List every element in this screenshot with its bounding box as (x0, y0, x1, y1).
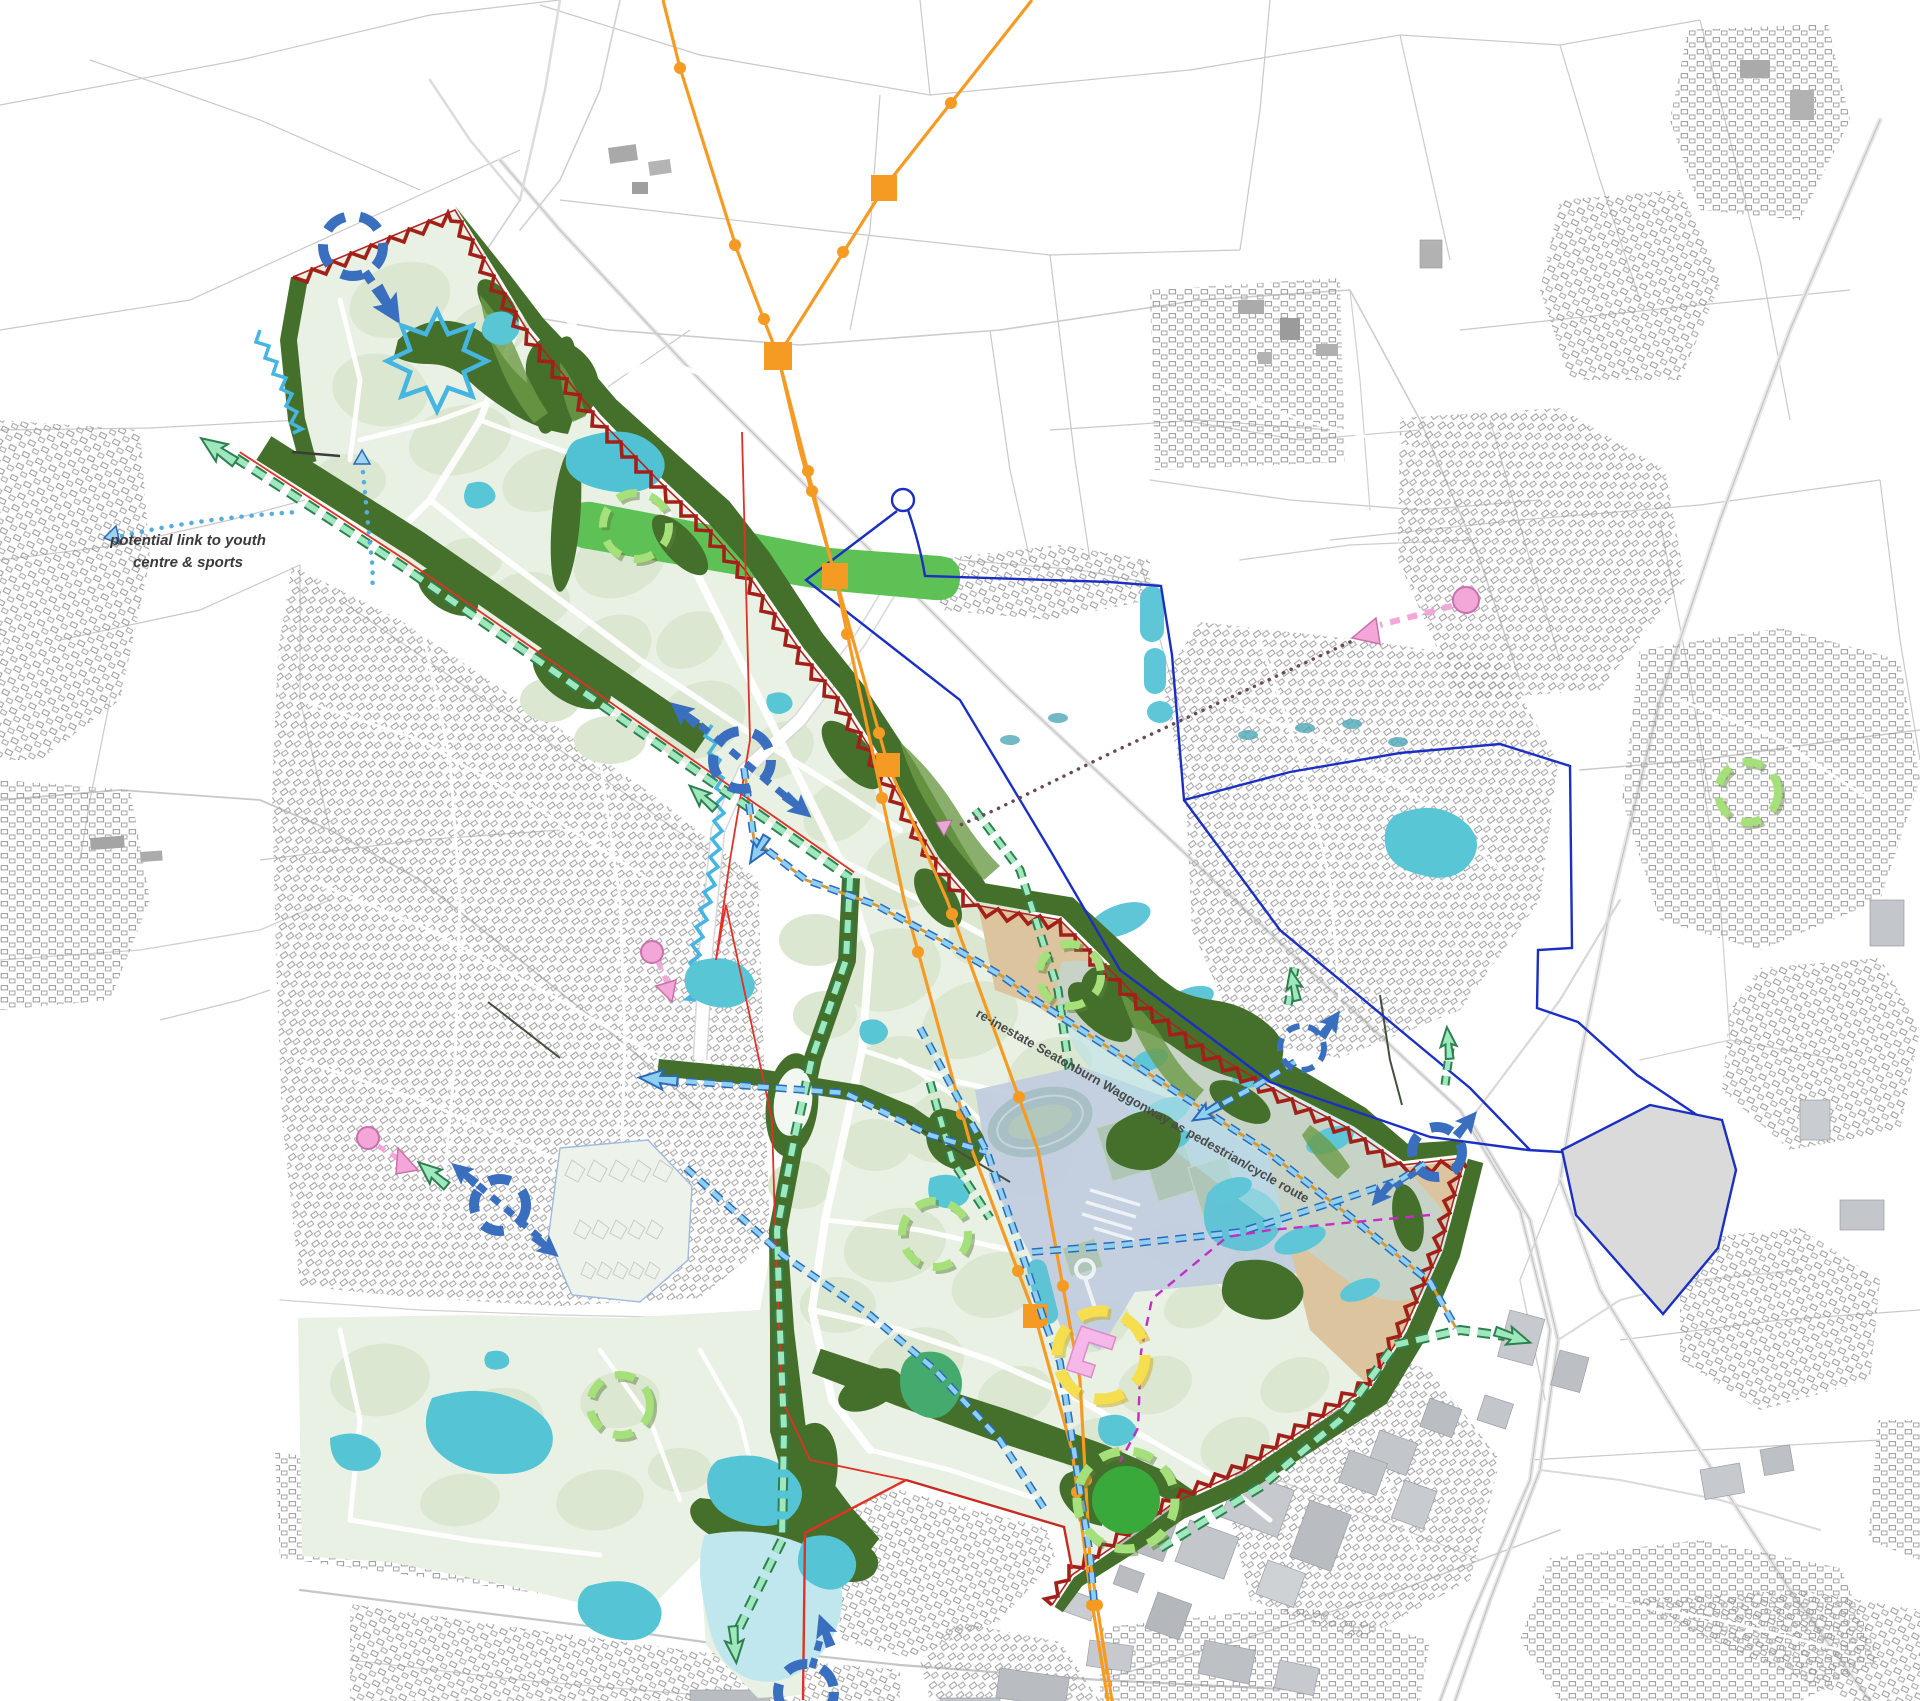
svg-text:centre & sports: centre & sports (133, 554, 243, 571)
svg-text:potential link to youth: potential link to youth (109, 532, 266, 549)
